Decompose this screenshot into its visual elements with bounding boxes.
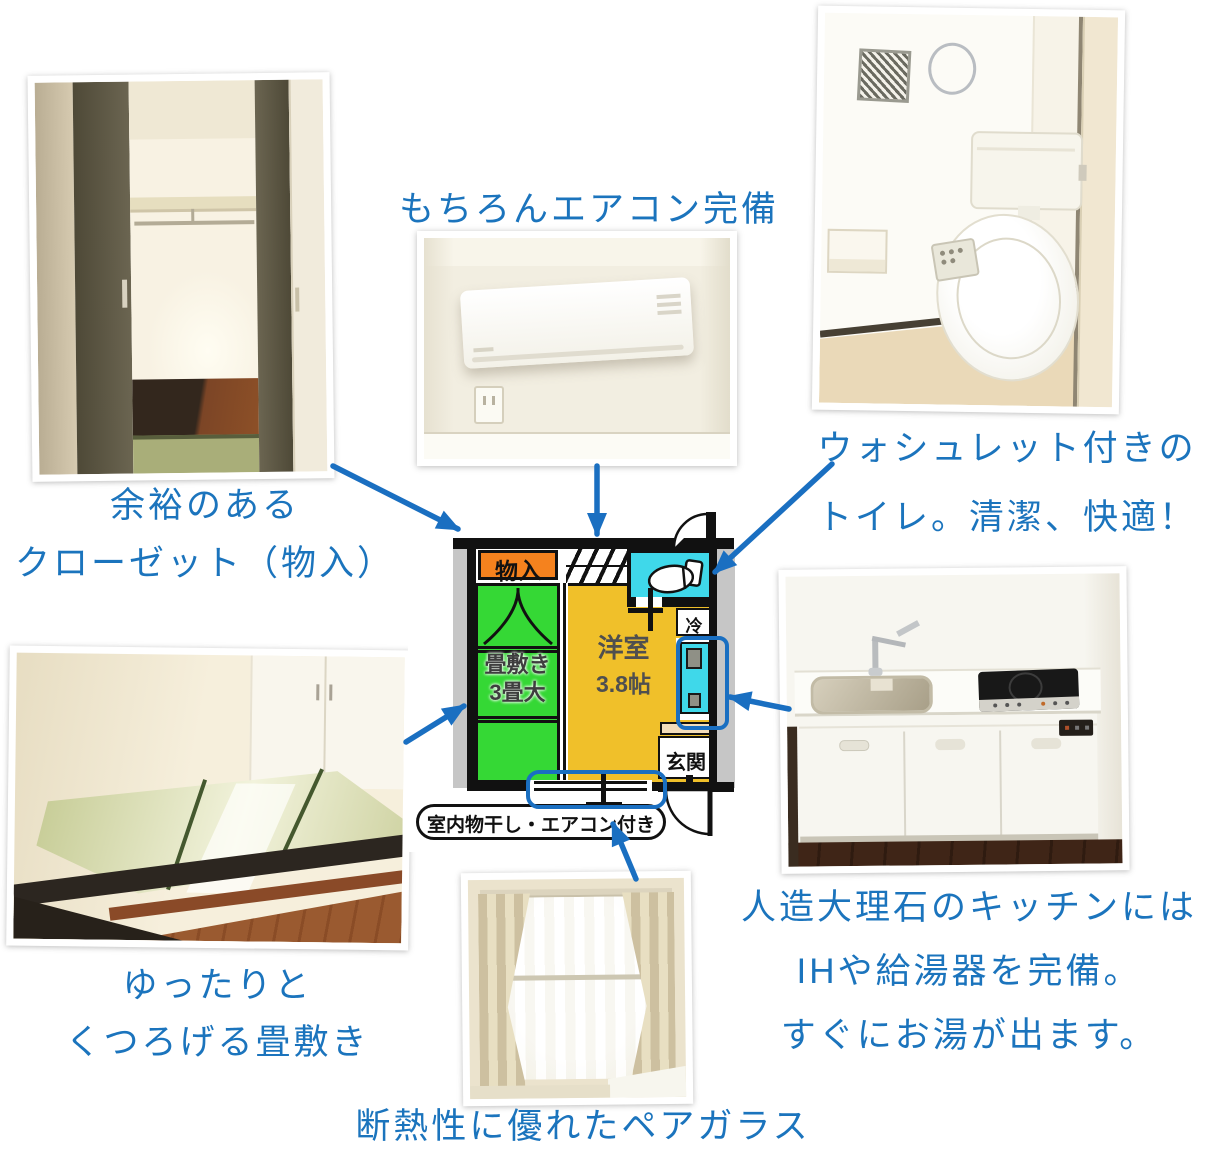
- aircon-outlet: [474, 386, 504, 424]
- washlet-buttons: [940, 250, 946, 256]
- closet-door-handle: [122, 280, 127, 308]
- closet-scene: [35, 79, 328, 474]
- toilet-tank-lid-line: [977, 147, 1075, 152]
- plan-tatami-label-line2: 3畳大: [475, 679, 560, 707]
- aircon-photo: [417, 231, 737, 466]
- closet-floor: [132, 378, 259, 438]
- plan-tatami-label-line1: 畳敷き: [475, 651, 560, 679]
- kitchen-caption-line3: すぐにお湯が出ます。: [718, 1004, 1220, 1068]
- window-caption-line1: 断熱性に優れたペアガラス: [308, 1098, 858, 1154]
- kitchen-cabinet: [799, 714, 1098, 843]
- kitchen-photo: [778, 566, 1129, 874]
- aircon-right-wall: [700, 238, 730, 459]
- tatami-caption-line2: くつろげる畳敷き: [5, 1014, 430, 1071]
- paper-holder-icon: [827, 229, 888, 274]
- towel-ring-icon: [928, 42, 977, 95]
- floor-plan: 冷 玄関 物入 畳敷き 3畳大: [408, 496, 754, 852]
- window-caption: 断熱性に優れたペアガラス: [308, 1098, 858, 1154]
- closet-right-door-handle: [295, 288, 299, 312]
- kitchen-scene: [785, 573, 1122, 866]
- faucet-neck-icon: [872, 638, 878, 672]
- water-heater-lights: [1065, 726, 1069, 730]
- tatami-closet-handles: [316, 684, 319, 700]
- plan-gray-band-left: [453, 549, 467, 788]
- plan-storage-box: 物入: [478, 550, 558, 580]
- tatami-scene: [13, 653, 404, 944]
- plan-storage-label: 物入: [480, 551, 555, 588]
- aircon-left-wall: [424, 238, 454, 459]
- plan-tatami-divider-2: [478, 716, 557, 719]
- kitchen-caption: 人造大理石のキッチンには IHや給湯器を完備。 すぐにお湯が出ます。: [718, 876, 1220, 1068]
- faucet-base: [868, 668, 882, 676]
- kitchen-caption-line2: IHや給湯器を完備。: [718, 940, 1220, 1004]
- closet-ceiling: [129, 80, 256, 140]
- closet-caption-line2: クローゼット（物入）: [0, 535, 410, 593]
- window-scene: [468, 878, 686, 1099]
- aircon-vent-slit: [472, 345, 684, 363]
- toilet-scene: [819, 13, 1118, 408]
- plan-room-label-line2: 3.8帖: [566, 666, 681, 702]
- kitchen-left-floor-sliver: [787, 727, 798, 867]
- real-estate-collage: 冷 玄関 物入 畳敷き 3畳大: [0, 0, 1226, 1154]
- door-arc-toilet-icon: [670, 510, 714, 552]
- vent-grille-icon: [857, 48, 912, 103]
- plan-tatami-divider-1: [478, 646, 557, 649]
- closet-left-wall: [35, 82, 78, 474]
- toilet-caption-line2: トイレ。清潔、快適！: [788, 483, 1226, 552]
- washlet-panel-icon: [930, 238, 979, 282]
- tatami-caption-line1: ゆったりと: [5, 957, 430, 1014]
- tatami-closet-seam: [323, 656, 327, 788]
- closet-right-wall: [289, 79, 328, 471]
- plan-entrance-box: 玄関: [658, 736, 714, 779]
- toilet-tank: [970, 131, 1083, 211]
- kitchen-highlight-box: [676, 636, 729, 730]
- aircon-label-lines: [656, 294, 680, 299]
- plan-tatami-label: 畳敷き 3畳大: [475, 651, 560, 707]
- tatami-closet-doors: [249, 655, 405, 789]
- cabinet-seam-1: [903, 732, 906, 842]
- toilet-photo: [812, 6, 1125, 415]
- toilet-icon: [645, 557, 707, 599]
- closet-door-left: [73, 82, 134, 475]
- window-photo: [461, 871, 693, 1106]
- faucet-lever-icon: [896, 620, 920, 637]
- aircon-ceiling: [424, 238, 730, 266]
- cabinet-rail-line: [799, 724, 1097, 729]
- plan-room-label: 洋室 3.8帖: [566, 630, 681, 702]
- cabinet-handles: [839, 740, 869, 751]
- ih-buttons: [993, 703, 997, 707]
- aircon-caption-line1: もちろんエアコン完備: [353, 181, 825, 239]
- toilet-flush-knob: [1078, 165, 1086, 181]
- plan-tick-toilet-h: [628, 608, 663, 613]
- window-hatch-icon: [566, 549, 628, 583]
- aircon-sill: [424, 432, 730, 459]
- kitchen-caption-line1: 人造大理石のキッチンには: [718, 876, 1220, 940]
- plan-note-label: 室内物干し・エアコン付き: [419, 810, 663, 837]
- closet-shelf: [130, 196, 256, 210]
- folding-door-icon: [480, 588, 556, 646]
- kitchen-sink-card: [871, 679, 893, 691]
- tatami-caption: ゆったりと くつろげる畳敷き: [5, 957, 430, 1071]
- aircon-caption: もちろんエアコン完備: [353, 181, 825, 239]
- closet-rod-support: [191, 209, 194, 223]
- plan-room-label-line1: 洋室: [566, 630, 681, 666]
- toilet-door-edge: [1077, 17, 1118, 408]
- tatami-photo: [6, 646, 412, 951]
- toilet-caption: ウォシュレット付きの トイレ。清潔、快適！: [788, 414, 1226, 552]
- kitchen-floor: [788, 839, 1122, 866]
- closet-tatami-strip: [133, 434, 259, 474]
- door-arc-entrance-icon: [660, 788, 718, 842]
- closet-caption: 余裕のある クローゼット（物入）: [0, 477, 410, 593]
- window-floor-strip: [470, 1085, 610, 1099]
- plan-note-oval: 室内物干し・エアコン付き: [416, 804, 666, 840]
- window-highlight-box: [526, 770, 667, 809]
- plan-entrance-label: 玄関: [660, 746, 712, 775]
- ih-cooktop: [978, 668, 1079, 712]
- plan-fridge-label: 冷: [678, 612, 710, 637]
- window-hatch-midline: [566, 565, 628, 567]
- aircon-logo: [473, 347, 493, 352]
- aircon-outlet-slots: [483, 396, 486, 405]
- cabinet-seam-2: [999, 731, 1002, 841]
- aircon-unit: [460, 277, 694, 369]
- water-heater-panel: [1059, 720, 1093, 736]
- toilet-caption-line1: ウォシュレット付きの: [788, 414, 1226, 483]
- closet-door-right: [255, 80, 294, 472]
- closet-caption-line1: 余裕のある: [0, 477, 410, 535]
- paper-holder-flap: [829, 259, 885, 272]
- plan-fridge-box: 冷: [676, 608, 713, 636]
- aircon-scene: [424, 238, 730, 459]
- closet-photo: [28, 72, 335, 482]
